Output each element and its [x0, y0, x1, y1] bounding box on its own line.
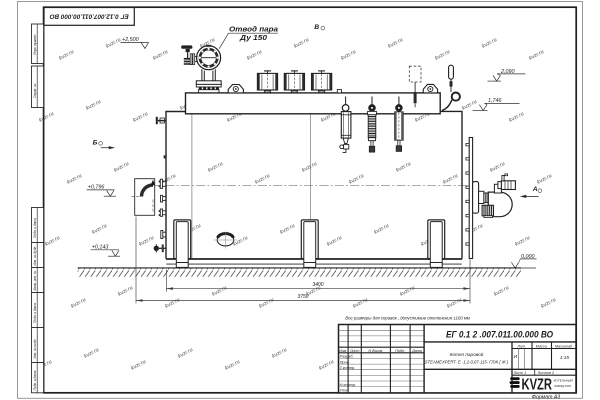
svg-text:Масштаб: Масштаб — [555, 345, 573, 349]
svg-text:В: В — [314, 24, 319, 31]
svg-text:А: А — [532, 186, 538, 193]
svg-text:Подп.: Подп. — [395, 349, 405, 353]
svg-text:1:15: 1:15 — [560, 355, 570, 361]
svg-text:Подп. и дата: Подп. и дата — [33, 218, 37, 238]
svg-text:Инв. № дубл.: Инв. № дубл. — [33, 246, 37, 266]
svg-text:Т.контр.: Т.контр. — [340, 365, 356, 370]
svg-text:N докум.: N докум. — [368, 349, 383, 353]
svg-text:Изм.: Изм. — [339, 349, 347, 353]
svg-text:Н.контр.: Н.контр. — [340, 382, 356, 387]
svg-text:ЕГ 0.12.007.011.00.000 ВО: ЕГ 0.12.007.011.00.000 ВО — [49, 12, 129, 19]
svg-text:ЗАВОД РЭП: ЗАВОД РЭП — [554, 384, 572, 388]
svg-text:Пров.: Пров. — [340, 359, 350, 364]
svg-text:3400: 3400 — [312, 282, 323, 288]
svg-text:Лист 1: Лист 1 — [513, 371, 527, 375]
svg-text:Утв.: Утв. — [340, 387, 349, 392]
svg-text:Дата: Дата — [411, 349, 422, 353]
svg-text:Справ. №: Справ. № — [33, 83, 37, 98]
svg-text:Котел паровой: Котел паровой — [450, 351, 484, 357]
svg-text:Подп. и дата: Подп. и дата — [33, 303, 37, 323]
svg-text:Листов 2: Листов 2 — [537, 371, 555, 375]
svg-text:KVZR: KVZR — [522, 377, 553, 394]
svg-text:Подп. и дата: Подп. и дата — [33, 370, 37, 390]
svg-text:Инв. № подл.: Инв. № подл. — [33, 339, 37, 359]
svg-text:КОТЕЛЬНЫЙ: КОТЕЛЬНЫЙ — [554, 379, 574, 383]
svg-text:ЕГ 0.1 2 .007.011.00.000 ВО: ЕГ 0.1 2 .007.011.00.000 ВО — [446, 329, 554, 340]
svg-text:Лит.: Лит. — [516, 345, 526, 349]
svg-text:Взам. инв. №: Взам. инв. № — [33, 270, 37, 290]
svg-text:Б: Б — [93, 139, 98, 146]
svg-text:Лист: Лист — [349, 349, 360, 353]
svg-text:3750: 3750 — [297, 294, 308, 300]
svg-text:Разраб.: Разраб. — [340, 354, 354, 359]
svg-text:Перв. примен.: Перв. примен. — [33, 34, 37, 55]
svg-text:И: И — [514, 354, 518, 360]
svg-text:Масса: Масса — [536, 345, 547, 349]
svg-text:Ду 150: Ду 150 — [239, 33, 268, 42]
svg-text:Формат А3: Формат А3 — [532, 395, 560, 400]
svg-text:STEAMEXPERT- Е -1,2-0,07-115-: STEAMEXPERT- Е -1,2-0,07-115- ГЛЖ ( Ж ) — [425, 359, 509, 364]
svg-text:Все размеры для справок , допу: Все размеры для справок , допустимые отк… — [345, 316, 470, 321]
